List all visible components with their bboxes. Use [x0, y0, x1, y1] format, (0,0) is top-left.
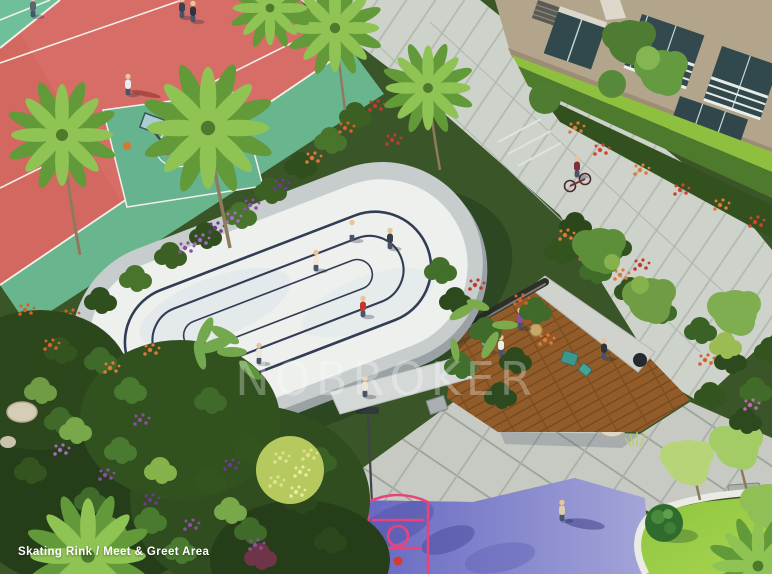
table — [530, 324, 542, 336]
play-element — [394, 557, 403, 566]
boulder — [7, 402, 37, 422]
basketball — [123, 142, 131, 150]
topiary-shrub — [645, 504, 683, 542]
boulder — [0, 436, 16, 448]
amenity-render-illustration — [0, 0, 772, 574]
yellow-flowering-bush — [256, 436, 324, 504]
property-photo: NOBROKER Skating Rink / Meet & Greet Are… — [0, 0, 772, 574]
caption: Skating Rink / Meet & Greet Area — [18, 546, 209, 558]
bag — [633, 353, 647, 367]
